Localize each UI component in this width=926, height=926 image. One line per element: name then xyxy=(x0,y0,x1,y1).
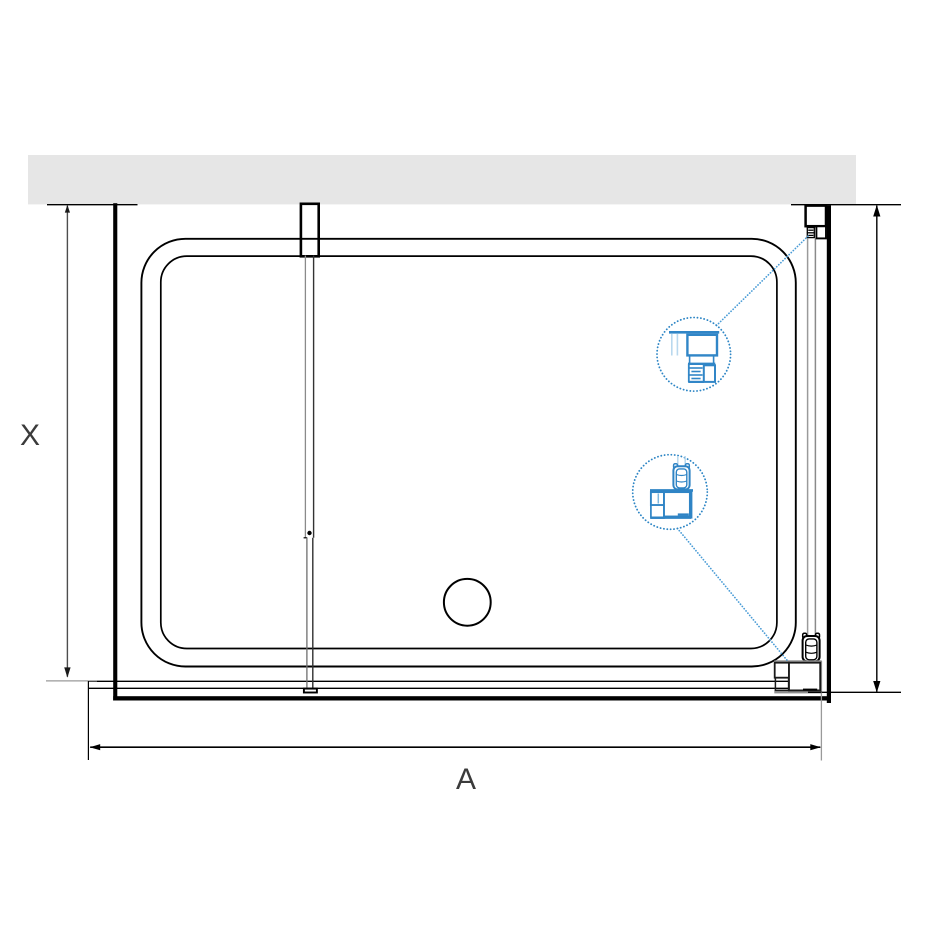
svg-text:X: X xyxy=(20,419,40,452)
svg-text:A: A xyxy=(456,763,476,796)
